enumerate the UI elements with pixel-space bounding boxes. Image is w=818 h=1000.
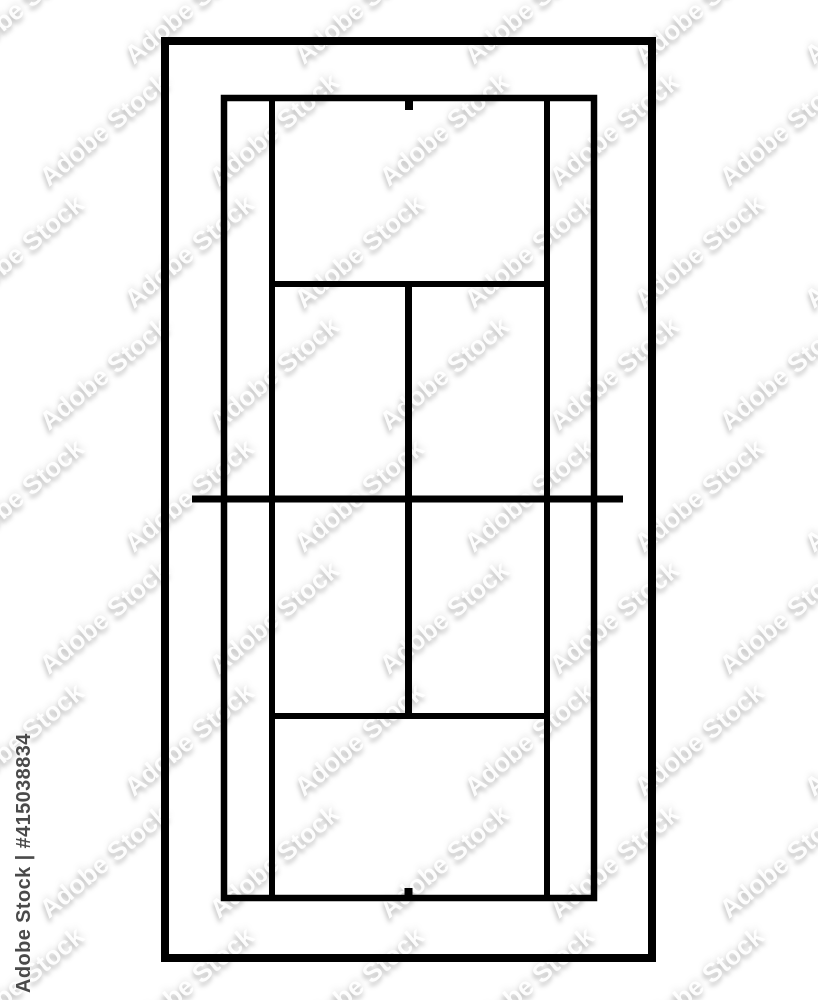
adobe-stock-credit-label: Adobe Stock | #415038834 [13, 733, 36, 993]
stock-image-preview: Adobe StockAdobe StockAdobe StockAdobe S… [0, 0, 818, 1000]
tennis-court-diagram [0, 0, 818, 1000]
